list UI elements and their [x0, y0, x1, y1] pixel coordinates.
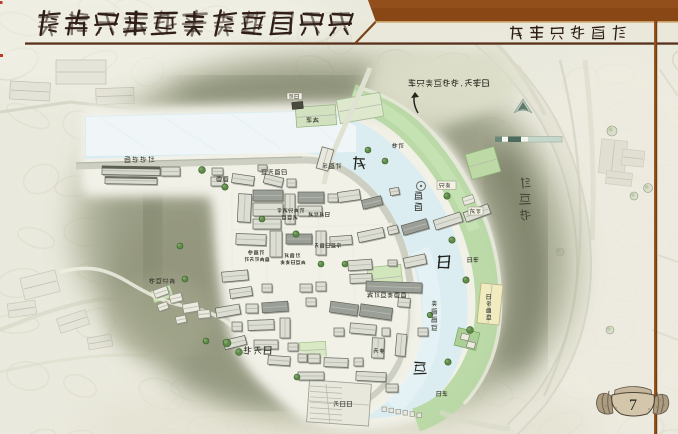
svg-text:7: 7	[629, 397, 637, 414]
